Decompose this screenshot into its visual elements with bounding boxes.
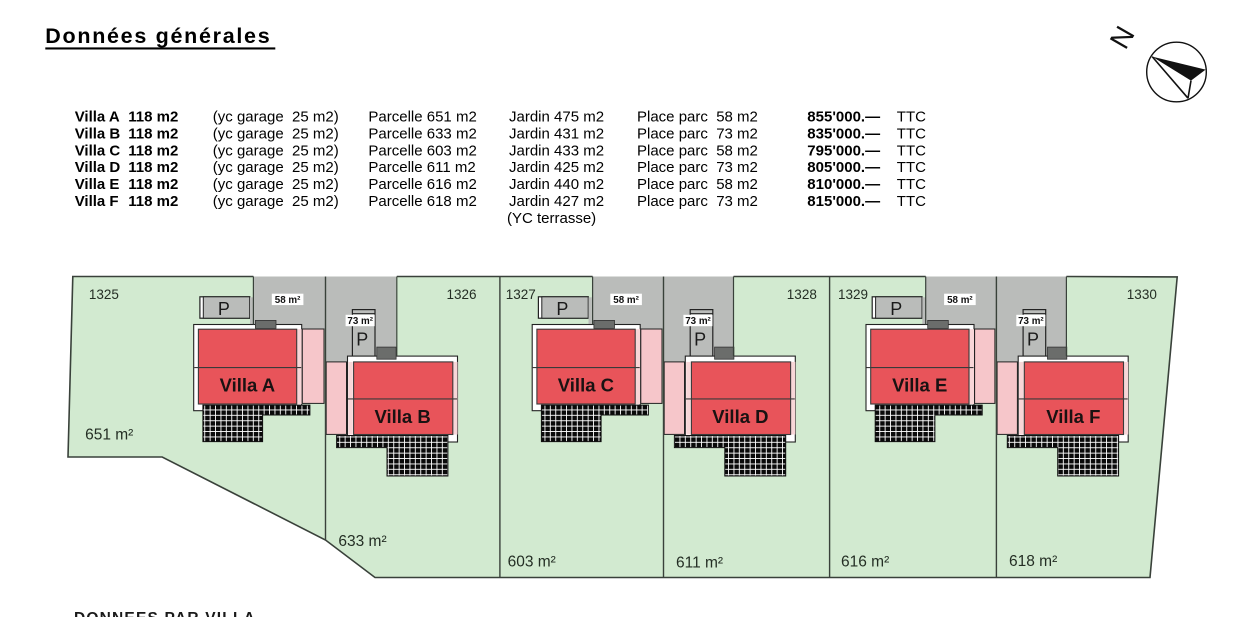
- svg-text:1330: 1330: [1127, 287, 1157, 302]
- svg-text:Données générales: Données générales: [45, 24, 271, 48]
- svg-text:651 m²: 651 m²: [85, 426, 133, 443]
- svg-text:P: P: [356, 330, 368, 350]
- svg-text:1325: 1325: [89, 287, 119, 302]
- svg-text:58 m²: 58 m²: [947, 295, 973, 306]
- svg-text:Place parc 58 m2: Place parc 58 m2: [637, 109, 758, 126]
- svg-text:Villa F: Villa F: [1046, 406, 1100, 427]
- svg-text:616 m²: 616 m²: [841, 554, 889, 571]
- svg-text:Jardin 475 m2: Jardin 475 m2: [509, 109, 604, 126]
- svg-text:Parcelle 616 m2: Parcelle 616 m2: [368, 176, 476, 193]
- svg-text:Place parc 73 m2: Place parc 73 m2: [637, 193, 758, 210]
- svg-text:Villa A: Villa A: [75, 109, 120, 126]
- svg-text:Jardin 427 m2: Jardin 427 m2: [509, 193, 604, 210]
- svg-text:Parcelle 603 m2: Parcelle 603 m2: [368, 142, 476, 159]
- svg-text:Place parc 73 m2: Place parc 73 m2: [637, 125, 758, 142]
- svg-text:118 m2: 118 m2: [128, 125, 178, 142]
- svg-text:805'000.—: 805'000.—: [807, 159, 880, 176]
- svg-text:Jardin 440 m2: Jardin 440 m2: [509, 176, 604, 193]
- svg-text:795'000.—: 795'000.—: [807, 142, 880, 159]
- svg-text:TTC: TTC: [897, 193, 926, 210]
- svg-text:Place parc 58 m2: Place parc 58 m2: [637, 176, 758, 193]
- svg-text:618 m²: 618 m²: [1009, 553, 1057, 570]
- svg-text:Villa F: Villa F: [75, 193, 119, 210]
- svg-text:73 m²: 73 m²: [685, 316, 711, 327]
- svg-text:(yc garage 25 m2): (yc garage 25 m2): [213, 142, 339, 159]
- svg-text:(yc garage 25 m2): (yc garage 25 m2): [213, 159, 339, 176]
- svg-text:1326: 1326: [447, 287, 477, 302]
- svg-text:810'000.—: 810'000.—: [807, 176, 880, 193]
- svg-text:118 m2: 118 m2: [128, 109, 178, 126]
- svg-text:Villa C: Villa C: [558, 374, 614, 395]
- svg-text:TTC: TTC: [897, 176, 926, 193]
- svg-text:611 m²: 611 m²: [676, 555, 723, 572]
- svg-text:Villa D: Villa D: [75, 159, 121, 176]
- svg-text:Jardin 433 m2: Jardin 433 m2: [509, 142, 604, 159]
- svg-text:118 m2: 118 m2: [128, 142, 178, 159]
- svg-text:Villa E: Villa E: [75, 176, 120, 193]
- svg-text:Villa E: Villa E: [892, 374, 947, 395]
- svg-text:P: P: [218, 299, 230, 319]
- svg-text:TTC: TTC: [897, 142, 926, 159]
- svg-text:Parcelle 633 m2: Parcelle 633 m2: [368, 125, 476, 142]
- svg-text:Villa A: Villa A: [220, 374, 276, 395]
- svg-text:Place parc 58 m2: Place parc 58 m2: [637, 142, 758, 159]
- svg-text:P: P: [1027, 330, 1039, 350]
- svg-text:P: P: [890, 299, 902, 319]
- svg-text:P: P: [694, 330, 706, 350]
- svg-text:Jardin 431 m2: Jardin 431 m2: [509, 125, 604, 142]
- svg-text:118 m2: 118 m2: [128, 176, 178, 193]
- svg-text:Parcelle 618 m2: Parcelle 618 m2: [368, 193, 476, 210]
- svg-text:1328: 1328: [787, 287, 817, 302]
- svg-text:58 m²: 58 m²: [613, 295, 639, 306]
- svg-text:P: P: [556, 299, 568, 319]
- svg-text:TTC: TTC: [897, 159, 926, 176]
- svg-text:1329: 1329: [838, 287, 868, 302]
- svg-text:633 m²: 633 m²: [338, 533, 386, 550]
- svg-text:118 m2: 118 m2: [128, 193, 178, 210]
- svg-text:Villa B: Villa B: [374, 406, 430, 427]
- svg-text:(yc garage 25 m2): (yc garage 25 m2): [213, 109, 339, 126]
- svg-text:855'000.—: 855'000.—: [807, 109, 880, 126]
- svg-text:Parcelle 651 m2: Parcelle 651 m2: [368, 109, 476, 126]
- svg-text:1327: 1327: [506, 287, 536, 302]
- svg-text:(YC terrasse): (YC terrasse): [507, 210, 596, 227]
- svg-text:Place parc 73 m2: Place parc 73 m2: [637, 159, 758, 176]
- svg-text:TTC: TTC: [897, 125, 926, 142]
- svg-text:Parcelle 611 m2: Parcelle 611 m2: [368, 159, 475, 176]
- svg-text:TTC: TTC: [897, 109, 926, 126]
- svg-text:603 m²: 603 m²: [508, 554, 556, 571]
- svg-text:73 m²: 73 m²: [347, 316, 373, 327]
- svg-text:(yc garage 25 m2): (yc garage 25 m2): [213, 193, 339, 210]
- svg-text:73 m²: 73 m²: [1018, 316, 1044, 327]
- svg-text:835'000.—: 835'000.—: [807, 125, 880, 142]
- svg-text:118 m2: 118 m2: [128, 159, 178, 176]
- svg-text:58 m²: 58 m²: [275, 295, 301, 306]
- svg-text:(yc garage 25 m2): (yc garage 25 m2): [213, 125, 339, 142]
- svg-text:(yc garage 25 m2): (yc garage 25 m2): [213, 176, 339, 193]
- svg-text:815'000.—: 815'000.—: [807, 193, 880, 210]
- svg-text:Villa C: Villa C: [75, 142, 121, 159]
- svg-text:Villa D: Villa D: [712, 406, 768, 427]
- svg-text:DONNEES PAR VILLA: DONNEES PAR VILLA: [74, 610, 256, 617]
- svg-text:Jardin 425 m2: Jardin 425 m2: [509, 159, 604, 176]
- svg-text:Villa B: Villa B: [75, 125, 121, 142]
